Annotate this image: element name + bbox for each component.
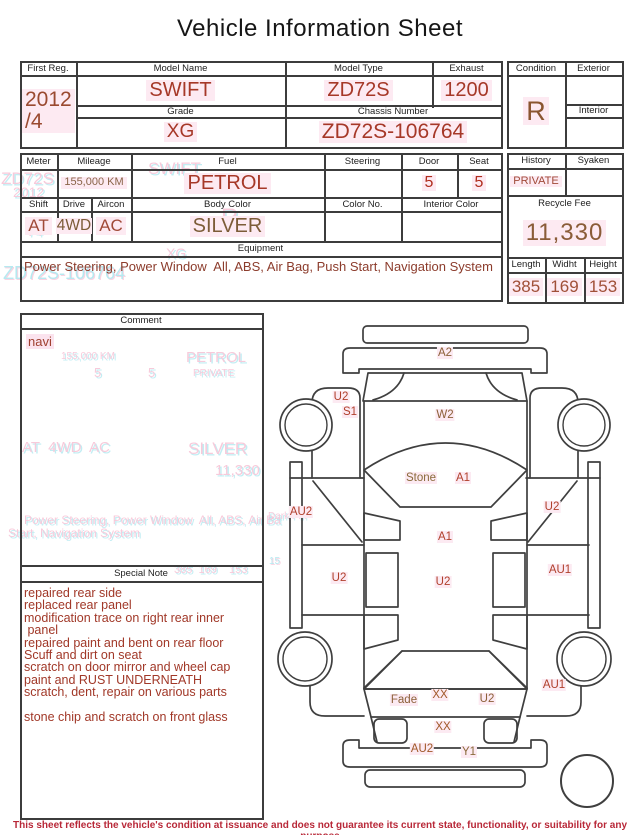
damage-code-label: U2	[544, 501, 561, 513]
damage-code-label: Stone	[405, 472, 437, 484]
damage-code-label: A1	[455, 472, 471, 484]
damage-code-label: AU2	[289, 506, 313, 518]
damage-code-label: XX	[431, 689, 448, 701]
damage-code-label: A2	[437, 347, 453, 359]
diagram-label-layer: A2U2S1W2StoneA1AU2U2A1AU1U2U2AU1FadeXXU2…	[0, 0, 640, 835]
damage-code-label: AU1	[542, 679, 566, 691]
damage-code-label: U2	[479, 693, 496, 705]
damage-code-label: S1	[342, 406, 358, 418]
damage-code-label: AU1	[548, 564, 572, 576]
damage-code-label: Y1	[461, 746, 477, 758]
footer-disclaimer: This sheet reflects the vehicle's condit…	[0, 820, 640, 835]
damage-code-label: U2	[333, 391, 350, 403]
vehicle-information-sheet: Vehicle Information Sheet ZD72S2012SWIFT…	[0, 0, 640, 835]
damage-code-label: A1	[437, 531, 453, 543]
damage-code-label: AU2	[410, 743, 434, 755]
damage-code-label: XX	[434, 721, 451, 733]
damage-code-label: Fade	[390, 694, 418, 706]
damage-code-label: W2	[435, 409, 454, 421]
damage-code-label: U2	[435, 576, 452, 588]
damage-code-label: U2	[331, 572, 348, 584]
